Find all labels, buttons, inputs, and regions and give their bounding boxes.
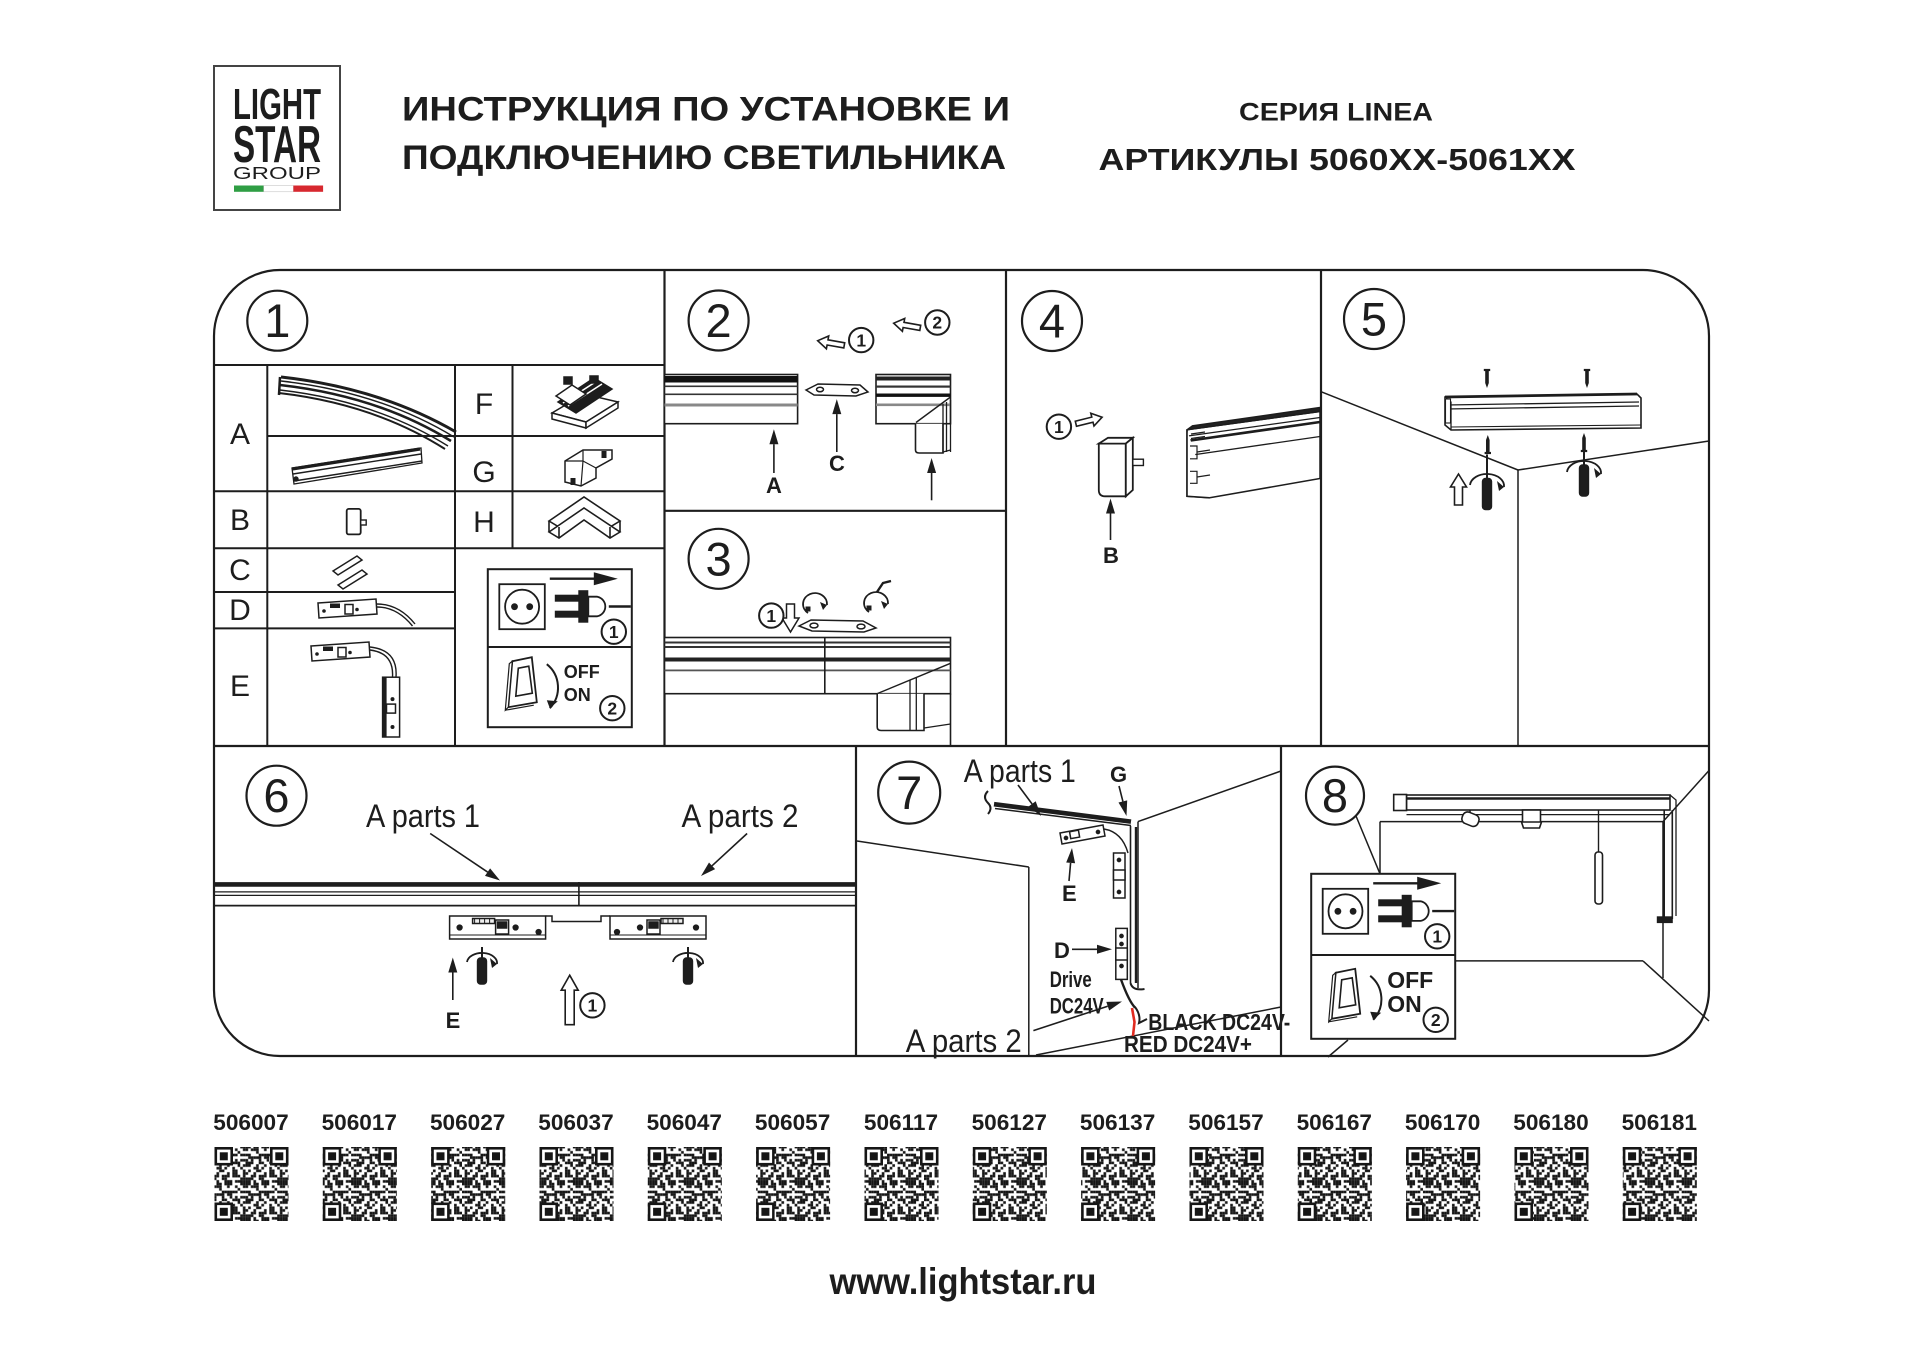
svg-text:1: 1 — [588, 996, 598, 1016]
svg-text:B: B — [230, 504, 250, 537]
svg-text:ИНСТРУКЦИЯ ПО УСТАНОВКЕ И: ИНСТРУКЦИЯ ПО УСТАНОВКЕ И — [402, 91, 1010, 129]
svg-text:OFF: OFF — [564, 662, 600, 682]
svg-text:G: G — [1110, 762, 1127, 787]
svg-text:A parts 1: A parts 1 — [366, 798, 480, 834]
svg-text:A: A — [230, 418, 250, 451]
svg-text:СЕРИЯ LINEA: СЕРИЯ LINEA — [1239, 99, 1433, 127]
svg-text:506167: 506167 — [1297, 1110, 1372, 1135]
svg-text:GROUP: GROUP — [233, 163, 321, 183]
svg-text:A parts 2: A parts 2 — [906, 1023, 1022, 1059]
svg-text:506027: 506027 — [430, 1110, 505, 1135]
svg-text:506157: 506157 — [1188, 1110, 1263, 1135]
svg-text:ON: ON — [1387, 991, 1422, 1017]
svg-text:5: 5 — [1361, 293, 1387, 346]
svg-text:ON: ON — [564, 685, 591, 705]
svg-text:A: A — [766, 473, 782, 498]
svg-text:506127: 506127 — [972, 1110, 1047, 1135]
svg-text:1: 1 — [1432, 927, 1442, 947]
svg-text:F: F — [475, 388, 493, 421]
svg-text:Drive: Drive — [1050, 967, 1092, 992]
svg-text:C: C — [829, 451, 845, 476]
svg-text:506170: 506170 — [1405, 1110, 1480, 1135]
svg-text:4: 4 — [1039, 295, 1065, 348]
svg-text:506017: 506017 — [322, 1110, 397, 1135]
svg-text:G: G — [472, 456, 495, 489]
svg-text:E: E — [230, 670, 250, 703]
svg-text:506180: 506180 — [1513, 1110, 1588, 1135]
svg-text:B: B — [1103, 543, 1119, 568]
svg-text:H: H — [473, 506, 495, 539]
svg-text:1: 1 — [856, 330, 866, 350]
svg-text:2: 2 — [1431, 1010, 1441, 1030]
svg-text:1: 1 — [1054, 417, 1064, 437]
svg-text:1: 1 — [609, 622, 619, 642]
svg-text:506007: 506007 — [213, 1110, 288, 1135]
svg-text:E: E — [446, 1008, 461, 1033]
svg-text:ПОДКЛЮЧЕНИЮ СВЕТИЛЬНИКА: ПОДКЛЮЧЕНИЮ СВЕТИЛЬНИКА — [402, 139, 1006, 177]
svg-text:D: D — [1054, 938, 1070, 963]
svg-text:D: D — [229, 594, 251, 627]
svg-text:7: 7 — [896, 766, 922, 819]
svg-text:A parts 1: A parts 1 — [964, 753, 1076, 789]
svg-text:АРТИКУЛЫ 5060XX-5061XX: АРТИКУЛЫ 5060XX-5061XX — [1099, 142, 1576, 177]
svg-text:506037: 506037 — [538, 1110, 613, 1135]
svg-text:506057: 506057 — [755, 1110, 830, 1135]
svg-text:A parts 2: A parts 2 — [682, 798, 799, 834]
svg-text:1: 1 — [766, 606, 776, 626]
svg-text:OFF: OFF — [1387, 967, 1433, 993]
svg-text:RED DC24V+: RED DC24V+ — [1124, 1031, 1252, 1057]
svg-text:506117: 506117 — [864, 1110, 938, 1135]
svg-text:2: 2 — [607, 698, 617, 718]
svg-text:www.lightstar.ru: www.lightstar.ru — [829, 1261, 1097, 1302]
svg-text:2: 2 — [932, 313, 942, 333]
svg-text:506181: 506181 — [1622, 1110, 1697, 1135]
svg-text:E: E — [1062, 881, 1077, 906]
svg-text:1: 1 — [264, 294, 290, 347]
svg-text:2: 2 — [706, 294, 732, 347]
svg-text:3: 3 — [706, 532, 732, 585]
svg-text:8: 8 — [1322, 769, 1348, 822]
svg-text:506047: 506047 — [647, 1110, 722, 1135]
svg-text:C: C — [229, 554, 251, 587]
svg-text:6: 6 — [263, 769, 289, 822]
svg-text:DC24V: DC24V — [1050, 994, 1104, 1019]
svg-text:506137: 506137 — [1080, 1110, 1155, 1135]
